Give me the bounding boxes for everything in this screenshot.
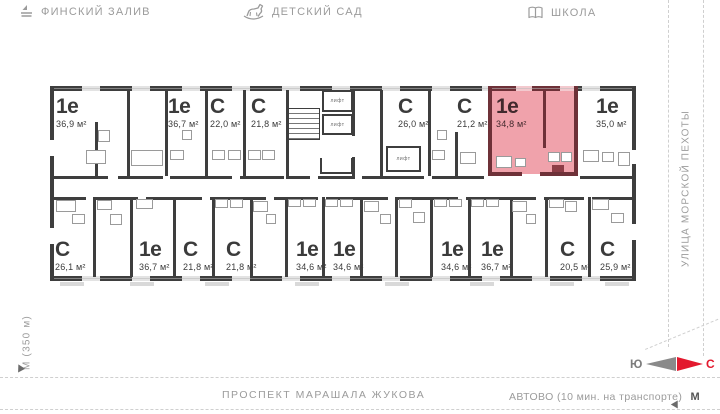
fixture (303, 199, 316, 207)
fixture (449, 199, 462, 207)
unit-label[interactable]: 1е36,7 м² (168, 96, 199, 129)
unit-type: С (600, 239, 631, 260)
highlighted-unit-wall (540, 172, 578, 176)
unit-divider-wall (430, 197, 433, 277)
unit-label[interactable]: 1е35,0 м² (596, 96, 627, 129)
unit-area: 21,2 м² (457, 120, 488, 129)
fixture (266, 214, 276, 224)
fixture (288, 199, 301, 207)
unit-area: 26,1 м² (55, 263, 86, 272)
fixture (496, 156, 512, 168)
fixture (340, 199, 353, 207)
unit-divider-wall (173, 197, 176, 277)
highlighted-unit-wall (574, 86, 578, 176)
unit-area: 36,7 м² (139, 263, 170, 272)
unit-label[interactable]: 1е36,9 м² (56, 96, 87, 129)
window-gap (50, 228, 54, 244)
unit-label[interactable]: С21,8 м² (226, 239, 257, 272)
interior-wall (455, 132, 458, 176)
unit-area: 25,9 м² (600, 263, 631, 272)
fixture (228, 150, 241, 160)
unit-divider-wall (93, 197, 96, 277)
unit-divider-wall (243, 90, 246, 176)
fixture (592, 199, 609, 210)
corridor-wall (432, 176, 484, 179)
window-sill (205, 282, 229, 286)
unit-divider-wall (285, 197, 288, 277)
unit-divider-wall (127, 90, 130, 176)
fixture (512, 201, 527, 212)
fixture (602, 152, 614, 162)
unit-label[interactable]: С21,2 м² (457, 96, 488, 129)
unit-type: 1е (56, 96, 87, 117)
unit-area: 34,6 м² (441, 263, 472, 272)
unit-area: 20,5 м² (560, 263, 591, 272)
unit-area: 34,8 м² (496, 120, 527, 129)
unit-type: 1е (496, 96, 527, 117)
unit-label[interactable]: С22,0 м² (210, 96, 241, 129)
unit-area: 22,0 м² (210, 120, 241, 129)
unit-type: С (183, 239, 214, 260)
unit-divider-wall (205, 90, 208, 176)
corridor-wall (146, 197, 202, 200)
elevator: лифт (322, 90, 353, 112)
unit-label[interactable]: С26,1 м² (55, 239, 86, 272)
highlighted-unit-wall (488, 172, 522, 176)
fixture (413, 212, 425, 223)
corridor-wall (118, 176, 163, 179)
unit-label[interactable]: С20,5 м² (560, 239, 591, 272)
unit-label[interactable]: 1е36,7 м² (139, 239, 170, 272)
window-gap (632, 150, 636, 164)
unit-label[interactable]: С21,8 м² (251, 96, 282, 129)
unit-area: 36,7 м² (481, 263, 512, 272)
window-sill (295, 282, 319, 286)
exterior-wall-bottom (50, 276, 636, 281)
unit-type: 1е (333, 239, 364, 260)
unit-type: 1е (596, 96, 627, 117)
unit-area: 35,0 м² (596, 120, 627, 129)
fixture (253, 201, 268, 212)
fixture (561, 152, 572, 162)
fixture (248, 150, 261, 160)
elevator-label: лифт (330, 122, 344, 128)
fixture (230, 199, 243, 208)
window-sill (470, 282, 494, 286)
fixture (618, 152, 630, 166)
fixture (460, 152, 476, 164)
unit-label[interactable]: С21,8 м² (183, 239, 214, 272)
fixture (548, 152, 560, 162)
unit-area: 21,8 м² (183, 263, 214, 272)
unit-type: 1е (168, 96, 199, 117)
unit-label[interactable]: С26,0 м² (398, 96, 429, 129)
window-gap (50, 140, 54, 156)
corridor-wall (318, 176, 355, 179)
exterior-wall-left (50, 86, 54, 281)
unit-type: 1е (441, 239, 472, 260)
building-floorplan: лифтлифтлифт1е36,9 м²1е36,7 м²С22,0 м²С2… (0, 0, 720, 414)
fixture (131, 150, 163, 166)
window-sill (130, 282, 154, 286)
unit-area: 34,6 м² (296, 263, 327, 272)
staircase (288, 108, 320, 140)
fixture (526, 214, 536, 224)
unit-area: 34,6 м² (333, 263, 364, 272)
fixture (611, 213, 624, 223)
corridor-wall (50, 176, 108, 179)
unit-type: С (398, 96, 429, 117)
unit-type: С (560, 239, 591, 260)
fixture (380, 214, 391, 224)
fixture (364, 201, 379, 212)
window-sill (385, 282, 409, 286)
exterior-wall-right (632, 86, 636, 281)
corridor-wall (286, 176, 310, 179)
fixture (262, 150, 275, 160)
fixture (434, 199, 447, 207)
unit-divider-wall (395, 197, 398, 277)
unit-area: 36,7 м² (168, 120, 199, 129)
elevator-label: лифт (330, 98, 344, 104)
fixture (432, 150, 445, 160)
unit-type: С (55, 239, 86, 260)
fixture (552, 165, 564, 172)
highlighted-unit-wall (543, 90, 546, 148)
corridor-wall (580, 176, 632, 179)
floorplan-page: ФИНСКИЙ ЗАЛИВ ДЕТСКИЙ САД ШКОЛА УЛИЦА МО… (0, 0, 720, 414)
fixture (86, 150, 106, 164)
unit-area: 36,9 м² (56, 120, 87, 129)
fixture (399, 199, 412, 208)
unit-label[interactable]: 1е34,6 м² (441, 239, 472, 272)
elevator-label: лифт (396, 156, 410, 162)
unit-area: 21,8 м² (251, 120, 282, 129)
fixture (170, 150, 184, 160)
fixture (549, 199, 564, 208)
fixture (98, 130, 110, 142)
unit-area: 21,8 м² (226, 263, 257, 272)
unit-divider-wall (380, 90, 383, 176)
corridor-wall (240, 176, 284, 179)
unit-label[interactable]: 1е34,6 м² (333, 239, 364, 272)
window-gap (632, 224, 636, 240)
window-sill (60, 282, 84, 286)
fixture (212, 150, 225, 160)
stair-vestibule (320, 158, 353, 174)
unit-type: С (251, 96, 282, 117)
window-sill (550, 282, 574, 286)
fixture (97, 200, 112, 210)
unit-area: 26,0 м² (398, 120, 429, 129)
unit-divider-wall (130, 197, 133, 277)
corridor-wall (170, 176, 232, 179)
fixture (471, 199, 484, 207)
unit-divider-wall (545, 197, 548, 277)
corridor-wall (362, 176, 424, 179)
unit-type: С (457, 96, 488, 117)
unit-label[interactable]: 1е34,6 м² (296, 239, 327, 272)
fixture (565, 201, 577, 212)
elevator: лифт (386, 146, 421, 172)
unit-type: С (210, 96, 241, 117)
fixture (486, 199, 499, 207)
unit-label-selected[interactable]: 1е34,8 м² (496, 96, 527, 129)
unit-type: С (226, 239, 257, 260)
unit-label[interactable]: С25,9 м² (600, 239, 631, 272)
fixture (583, 150, 599, 162)
unit-type: 1е (139, 239, 170, 260)
fixture (215, 199, 228, 208)
highlighted-unit-wall (488, 86, 492, 176)
fixture (136, 199, 153, 209)
unit-type: 1е (296, 239, 327, 260)
unit-type: 1е (481, 239, 512, 260)
fixture (182, 130, 192, 140)
fixture (110, 214, 122, 225)
fixture (325, 199, 338, 207)
highlighted-exterior-wall (488, 86, 578, 91)
fixture (515, 158, 526, 167)
fixture (56, 200, 76, 212)
elevator: лифт (322, 114, 353, 135)
window-sill (605, 282, 629, 286)
fixture (437, 130, 447, 140)
fixture (72, 214, 85, 224)
unit-label[interactable]: 1е36,7 м² (481, 239, 512, 272)
